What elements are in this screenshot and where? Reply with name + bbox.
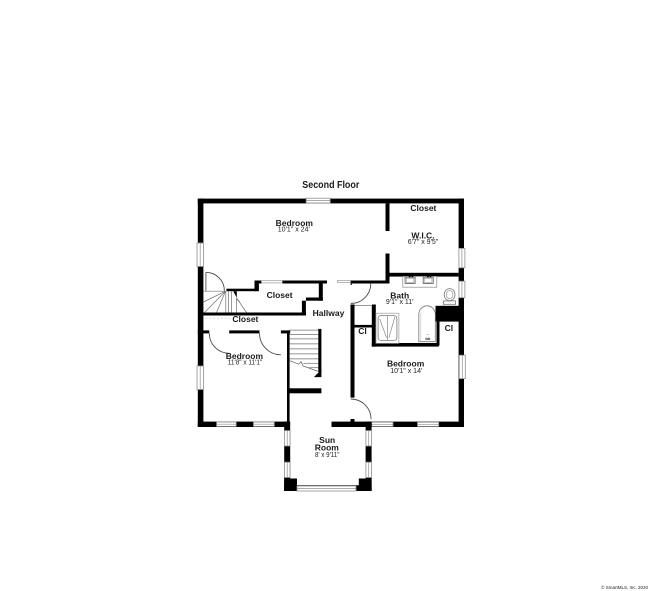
svg-text:Closet: Closet: [410, 203, 436, 213]
svg-text:10'1" x 24': 10'1" x 24': [278, 227, 310, 234]
svg-text:Closet: Closet: [267, 290, 293, 300]
svg-text:Cl: Cl: [445, 323, 454, 333]
svg-text:10'1" x 14': 10'1" x 14': [390, 368, 422, 375]
svg-text:Hallway: Hallway: [313, 308, 345, 318]
svg-text:11'8" x 11'1": 11'8" x 11'1": [228, 360, 263, 367]
svg-text:Closet: Closet: [232, 314, 258, 324]
svg-text:8' x 9'11": 8' x 9'11": [315, 452, 340, 459]
svg-text:Cl: Cl: [358, 326, 367, 336]
svg-text:© SmartMLS, Inc. 2020: © SmartMLS, Inc. 2020: [601, 584, 648, 590]
svg-text:9'1" x 11': 9'1" x 11': [386, 299, 414, 306]
svg-text:Second Floor: Second Floor: [302, 179, 359, 191]
svg-text:6'7" x 9'5": 6'7" x 9'5": [408, 239, 439, 246]
svg-text:Room: Room: [315, 443, 340, 453]
